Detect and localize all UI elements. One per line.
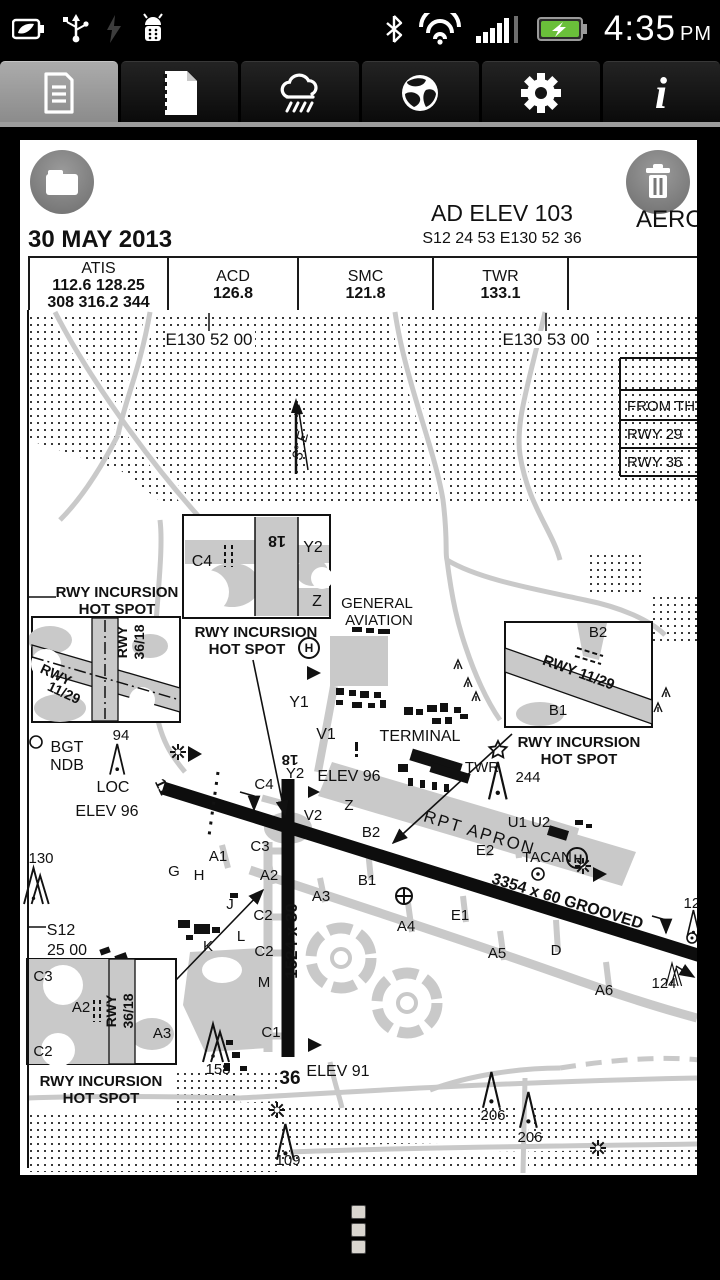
map-label: 206 [480, 1107, 505, 1124]
map-label: NDB [50, 757, 84, 774]
chart-date: 30 MAY 2013 [28, 226, 172, 254]
tab-web[interactable] [362, 61, 480, 123]
wifi-icon [417, 13, 463, 45]
map-label: HOT SPOT [63, 1090, 140, 1107]
android-debug-icon [138, 13, 168, 45]
map-label: A5 [488, 945, 506, 962]
svg-text:i: i [655, 70, 668, 116]
map-label: 36/18 [131, 624, 147, 659]
map-label: HOT SPOT [541, 751, 618, 768]
ad-elev-text: AD ELEV 103 [388, 200, 616, 227]
map-label: E130 53 00 [503, 330, 590, 349]
map-label: 126 [683, 895, 697, 912]
map-label: S12 [47, 922, 76, 939]
map-label: TERMINAL [380, 728, 461, 745]
map-label: E1 [451, 907, 469, 924]
map-label: H [574, 852, 583, 866]
globe-icon [399, 72, 441, 114]
info-icon: i [649, 70, 673, 116]
folder-button[interactable] [30, 150, 94, 214]
map-label: ELEV 96 [317, 768, 380, 785]
map-label: 130 [28, 850, 53, 867]
tab-weather[interactable] [241, 61, 359, 123]
map-label: V1 [316, 726, 336, 743]
map-label: A3 [153, 1025, 171, 1042]
map-label: 36 [279, 1068, 300, 1089]
map-label: A2 [72, 999, 90, 1016]
info-table-row: RWY 29 [627, 426, 682, 443]
trash-button[interactable] [626, 150, 690, 214]
map-label: 158 [205, 1061, 230, 1078]
tab-plates[interactable] [121, 61, 239, 123]
frequency-table: ATIS112.6 128.25308 316.2 344ACD126.8SMC… [28, 256, 697, 314]
clock-time: 4:35 [604, 9, 676, 49]
freq-col-ACD: ACD126.8 [167, 258, 297, 312]
map-label: A2 [260, 867, 278, 884]
map-label: 109 [275, 1152, 300, 1169]
map-label: ELEV 96 [75, 803, 138, 820]
map-label: Y2 [303, 539, 323, 556]
settings-gear-icon [519, 71, 563, 115]
clock-meridiem: PM [680, 23, 712, 46]
map-label: HOT SPOT [79, 601, 156, 618]
aerodrome-elevation: AD ELEV 103 S12 24 53 E130 52 36 [388, 200, 616, 248]
tab-bar: i [0, 57, 720, 127]
map-label: C2 [253, 907, 272, 924]
map-label: C2 [33, 1043, 52, 1060]
freq-col-empty [567, 258, 697, 312]
map-label: TWR [465, 759, 499, 776]
map-label: C1 [261, 1024, 280, 1041]
map-label: Y2 [286, 765, 304, 782]
map-label: 36/18 [120, 993, 136, 1028]
map-label: C3 [250, 838, 269, 855]
map-label: 18 [268, 532, 286, 549]
map-label: RWY [103, 994, 119, 1027]
map-label: 124 [651, 975, 676, 992]
map-label: 244 [515, 769, 540, 786]
ad-coords-text: S12 24 53 E130 52 36 [388, 230, 616, 248]
status-bar-left [0, 13, 168, 45]
usb-icon [62, 14, 90, 44]
tab-documents[interactable] [0, 61, 118, 123]
map-label: Z [344, 797, 353, 814]
tab-underline [0, 122, 720, 127]
map-label: Y1 [289, 694, 309, 711]
info-table-row: RWY 36 [627, 454, 682, 471]
document-icon [42, 72, 76, 114]
map-label: L [237, 928, 245, 945]
drag-handle-dot [351, 1240, 366, 1254]
map-label: ELEV 91 [306, 1063, 369, 1080]
map-label: M [258, 974, 271, 991]
map-label: 1524 x 30 [282, 903, 301, 979]
map-label: HOT SPOT [209, 641, 286, 658]
map-label: RWY INCURSION [518, 734, 641, 751]
map-label: A4 [397, 918, 415, 935]
map-label: H [305, 641, 314, 655]
map-label: RWY INCURSION [40, 1073, 163, 1090]
info-table-row: FROM TH [627, 398, 695, 415]
map-label: D [551, 942, 562, 959]
map-label: GP [696, 941, 697, 958]
map-label: V2 [304, 807, 322, 824]
map-label: Z [312, 593, 322, 610]
map-label: H [194, 867, 205, 884]
drag-handle-dot [351, 1223, 366, 1237]
map-label: 25 00 [47, 942, 87, 959]
signal-strength-icon [476, 14, 524, 44]
map-label: B1 [549, 702, 567, 719]
chart-page[interactable]: 30 MAY 2013 AD ELEV 103 S12 24 53 E130 5… [20, 140, 697, 1175]
map-label: B1 [358, 872, 376, 889]
map-label: B2 [589, 624, 607, 641]
clock: 4:35 PM [604, 9, 712, 49]
freq-col-ATIS: ATIS112.6 128.25308 316.2 344 [30, 258, 167, 312]
map-label: J [226, 896, 234, 913]
map-label: BGT [51, 739, 84, 756]
status-bar-right: 4:35 PM [384, 9, 720, 49]
map-label: C2 [254, 943, 273, 960]
map-label: E130 52 00 [166, 330, 253, 349]
drag-handle-dot [351, 1205, 366, 1219]
map-label: LOC [97, 779, 130, 796]
map-label: C4 [254, 776, 273, 793]
aerodrome-chart-map[interactable]: FROM THRWY 29RWY 36 E130 52 00E130 53 00… [20, 310, 697, 1175]
status-bar: 4:35 PM [0, 0, 720, 57]
weather-cloud-icon [277, 71, 323, 115]
freq-col-TWR: TWR133.1 [432, 258, 567, 312]
map-label: TACAN [522, 849, 572, 866]
freq-col-SMC: SMC121.8 [297, 258, 432, 312]
map-label: GENERAL [341, 595, 413, 612]
map-label: K [203, 938, 213, 955]
battery-saver-leaf-icon [12, 14, 46, 44]
map-label: C3 [33, 968, 52, 985]
trash-icon [638, 162, 678, 202]
battery-charging-icon [537, 14, 591, 44]
map-label: 206 [517, 1129, 542, 1146]
tab-info[interactable]: i [603, 61, 720, 123]
flash-dim-icon [106, 15, 122, 43]
plates-page-icon [161, 71, 197, 115]
map-label: RWY INCURSION [56, 584, 179, 601]
tab-settings[interactable] [482, 61, 600, 123]
map-label: U1 U2 [508, 814, 551, 831]
map-label: G [168, 863, 180, 880]
bluetooth-icon [384, 14, 404, 44]
map-label: A6 [595, 982, 613, 999]
map-label: B2 [362, 824, 380, 841]
chart-title-partial: AEROD [636, 206, 697, 234]
map-label: C4 [192, 553, 213, 570]
map-label: A3 [312, 888, 330, 905]
map-label: E2 [476, 842, 494, 859]
map-label: 94 [113, 727, 130, 744]
map-label: A1 [209, 848, 227, 865]
map-label: AVIATION [345, 612, 413, 629]
folder-icon [42, 164, 82, 200]
map-label: RWY INCURSION [195, 624, 318, 641]
map-label: RWY [114, 625, 130, 658]
